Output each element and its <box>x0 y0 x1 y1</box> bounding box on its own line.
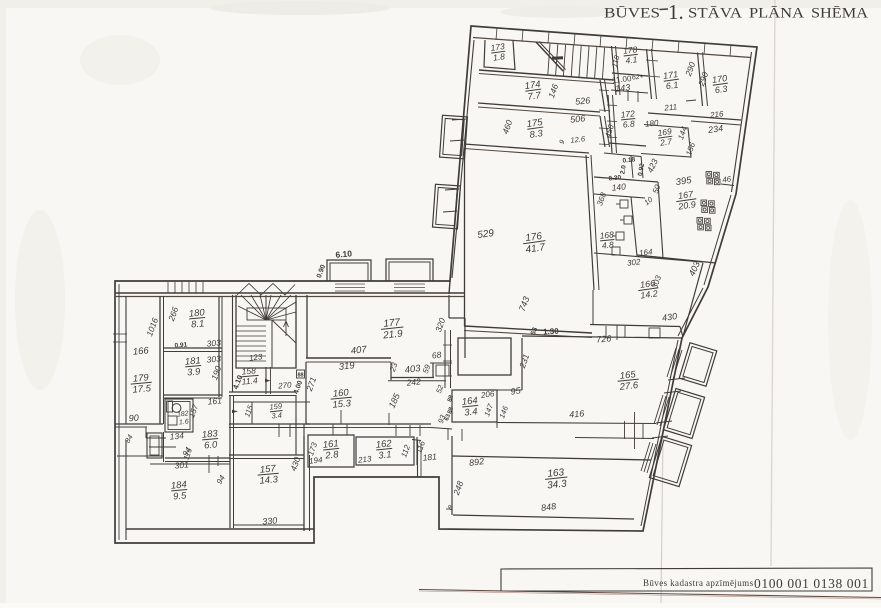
svg-text:848: 848 <box>540 501 556 513</box>
svg-text:6.1: 6.1 <box>665 80 679 92</box>
svg-text:8.1: 8.1 <box>191 318 205 330</box>
svg-text:3.1: 3.1 <box>378 449 392 461</box>
svg-text:892: 892 <box>468 456 484 468</box>
svg-text:301: 301 <box>174 459 189 470</box>
svg-text:7.7: 7.7 <box>527 90 542 103</box>
svg-text:181: 181 <box>422 451 437 462</box>
svg-text:SHĒMA: SHĒMA <box>811 6 868 22</box>
svg-text:12.6: 12.6 <box>570 134 586 145</box>
svg-text:3.9: 3.9 <box>187 366 202 378</box>
svg-text:46: 46 <box>722 174 733 184</box>
svg-text:123: 123 <box>248 352 263 363</box>
svg-text:1.: 1. <box>668 0 684 24</box>
svg-text:726: 726 <box>596 333 612 344</box>
svg-text:9.5: 9.5 <box>173 490 188 502</box>
svg-text:STĀVA: STĀVA <box>688 6 742 22</box>
svg-text:15.3: 15.3 <box>332 398 352 411</box>
svg-text:BŪVES: BŪVES <box>604 6 660 22</box>
svg-text:1.6: 1.6 <box>179 419 190 427</box>
svg-text:161: 161 <box>207 395 222 406</box>
svg-text:62+: 62+ <box>632 73 645 81</box>
svg-text:2.7: 2.7 <box>658 136 672 148</box>
svg-text:21.9: 21.9 <box>382 328 404 341</box>
svg-text:270: 270 <box>277 380 293 390</box>
svg-text:6.10: 6.10 <box>335 248 353 259</box>
svg-text:PLĀNA: PLĀNA <box>749 6 804 22</box>
svg-text:3.4: 3.4 <box>464 406 478 418</box>
svg-text:1.8: 1.8 <box>492 51 505 63</box>
svg-text:319: 319 <box>338 360 356 373</box>
svg-text:164: 164 <box>639 247 654 257</box>
svg-text:407: 407 <box>350 344 368 357</box>
svg-text:0.91: 0.91 <box>174 341 188 349</box>
svg-text:242: 242 <box>405 376 421 388</box>
svg-text:403: 403 <box>404 363 422 376</box>
svg-text:506: 506 <box>570 113 586 125</box>
svg-text:6.8: 6.8 <box>622 118 635 129</box>
svg-text:88: 88 <box>297 373 303 379</box>
svg-text:0100 001 0138 001: 0100 001 0138 001 <box>754 576 869 591</box>
svg-text:430: 430 <box>661 311 677 323</box>
svg-text:14.3: 14.3 <box>259 474 279 487</box>
svg-text:303: 303 <box>206 353 221 364</box>
svg-text:90: 90 <box>128 413 139 424</box>
svg-text:6.3: 6.3 <box>714 84 728 96</box>
svg-text:211: 211 <box>663 102 678 112</box>
svg-text:1.30: 1.30 <box>543 327 560 337</box>
svg-text:213: 213 <box>357 454 373 465</box>
svg-text:216: 216 <box>709 109 725 120</box>
svg-text:3.4: 3.4 <box>271 410 282 420</box>
svg-text:6.0: 6.0 <box>204 439 219 451</box>
svg-text:140: 140 <box>611 181 626 192</box>
svg-text:194: 194 <box>309 455 324 465</box>
svg-text:395: 395 <box>675 175 693 188</box>
svg-text:526: 526 <box>575 95 591 107</box>
svg-text:303: 303 <box>206 337 221 348</box>
svg-text:68: 68 <box>431 349 442 360</box>
svg-text:2.8: 2.8 <box>324 449 340 461</box>
svg-text:302: 302 <box>627 257 642 267</box>
svg-text:134: 134 <box>169 430 184 441</box>
svg-text:4.1: 4.1 <box>625 54 638 65</box>
svg-text:0.18: 0.18 <box>622 156 636 164</box>
svg-text:166: 166 <box>132 345 149 357</box>
svg-text:27.6: 27.6 <box>618 380 639 393</box>
svg-text:8.3: 8.3 <box>529 128 544 141</box>
svg-text:34.3: 34.3 <box>547 478 568 491</box>
svg-text:17.5: 17.5 <box>132 383 152 396</box>
svg-text:416: 416 <box>569 408 585 419</box>
svg-text:Būves kadastra apzīmējums: Būves kadastra apzīmējums <box>643 578 754 588</box>
